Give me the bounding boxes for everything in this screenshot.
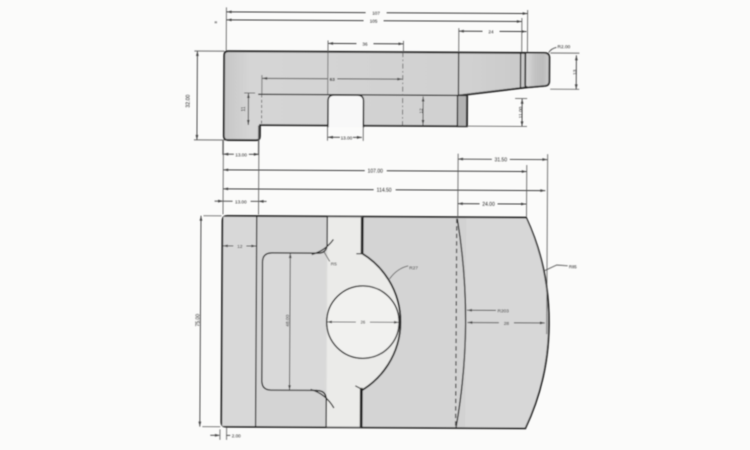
- svg-text:11: 11: [241, 106, 247, 111]
- svg-text:48.00: 48.00: [285, 314, 291, 326]
- svg-text:24.00: 24.00: [482, 202, 495, 208]
- svg-text:R2.00: R2.00: [557, 44, 570, 50]
- svg-text:107.00: 107.00: [368, 169, 384, 175]
- svg-text:114.50: 114.50: [377, 188, 392, 194]
- svg-text:107: 107: [372, 11, 380, 16]
- svg-text:R5: R5: [331, 261, 337, 267]
- svg-text:32.00: 32.00: [185, 95, 191, 108]
- svg-text:11.00: 11.00: [518, 106, 524, 118]
- svg-text:28: 28: [504, 321, 510, 327]
- svg-text:63: 63: [330, 77, 336, 82]
- svg-text:12: 12: [419, 108, 425, 114]
- svg-text:13.00: 13.00: [235, 152, 247, 157]
- svg-text:13.00: 13.00: [341, 135, 353, 140]
- svg-text:13: 13: [572, 69, 578, 75]
- svg-text:13.00: 13.00: [235, 199, 247, 204]
- svg-text:R27: R27: [409, 265, 418, 271]
- svg-text:26: 26: [361, 320, 366, 325]
- svg-text:31.50: 31.50: [495, 157, 508, 163]
- svg-text:2.00: 2.00: [232, 433, 241, 438]
- svg-text:105: 105: [370, 19, 378, 24]
- svg-text:24: 24: [488, 29, 494, 34]
- svg-text:36: 36: [362, 42, 368, 47]
- svg-text:75.00: 75.00: [195, 314, 201, 327]
- svg-text:R85: R85: [569, 264, 577, 269]
- svg-text:R203: R203: [497, 308, 509, 314]
- svg-text:12: 12: [237, 244, 243, 250]
